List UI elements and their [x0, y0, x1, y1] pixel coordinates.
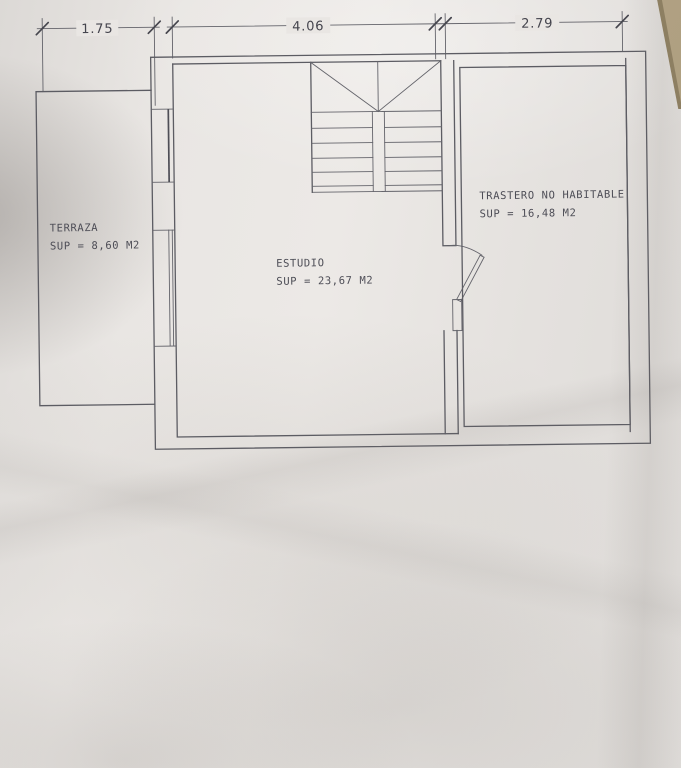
dimension-label-right: 2.79: [521, 16, 553, 31]
left-wall-windows: [151, 109, 176, 346]
staircase: [311, 61, 443, 193]
dimension-label-middle: 4.06: [292, 19, 324, 34]
stair-treads-right: [385, 127, 443, 186]
estudio-name: ESTUDIO: [276, 257, 325, 270]
trastero-area: SUP = 16,48 M2: [480, 207, 577, 220]
window-glass-line: [168, 109, 169, 182]
terraza-name: TERRAZA: [50, 222, 99, 235]
dimension-chain: 1.75 4.06 2.79: [36, 11, 629, 106]
stair-arrow: [311, 61, 442, 113]
dimension-label-left: 1.75: [81, 22, 113, 37]
estudio-area: SUP = 23,67 M2: [276, 275, 373, 288]
door-jamb: [453, 300, 462, 331]
window-glass-line: [169, 230, 174, 346]
floor-plan-photo: 1.75 4.06 2.79: [0, 0, 681, 768]
door: [449, 245, 485, 302]
stair-treads-left: [312, 128, 374, 187]
stair-stringer: [372, 111, 385, 191]
terraza-area: SUP = 8,60 M2: [50, 239, 140, 252]
trastero-outline: [460, 65, 630, 426]
trastero-name: TRASTERO NO HABITABLE: [479, 189, 624, 203]
room-labels: TERRAZA SUP = 8,60 M2 ESTUDIO SUP = 23,6…: [49, 189, 625, 291]
door-swing-arc: [449, 245, 482, 256]
door-leaf: [456, 255, 485, 301]
floor-plan-drawing: 1.75 4.06 2.79: [0, 0, 681, 768]
